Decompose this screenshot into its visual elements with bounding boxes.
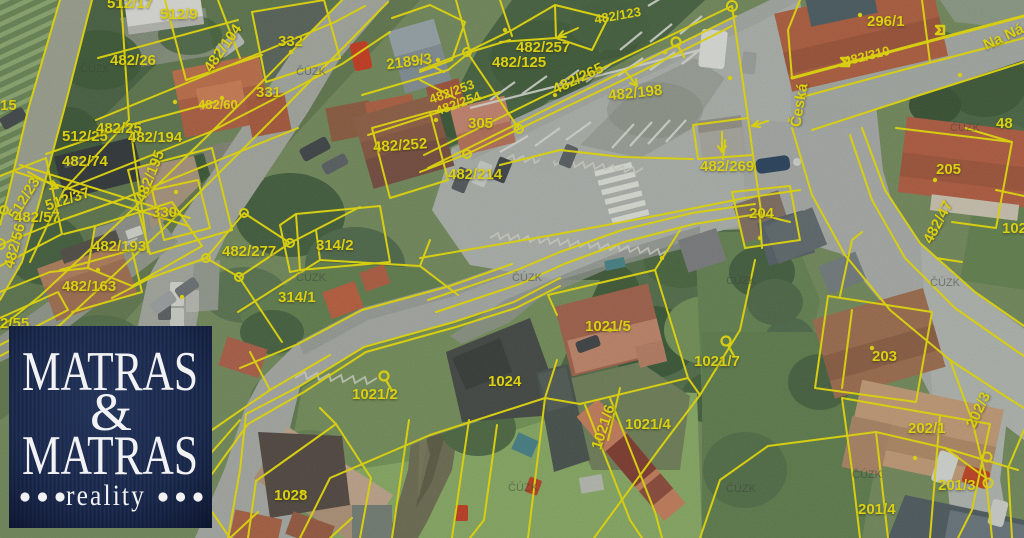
svg-text:MATRAS: MATRAS xyxy=(22,425,198,487)
svg-text:reality: reality xyxy=(66,479,146,512)
